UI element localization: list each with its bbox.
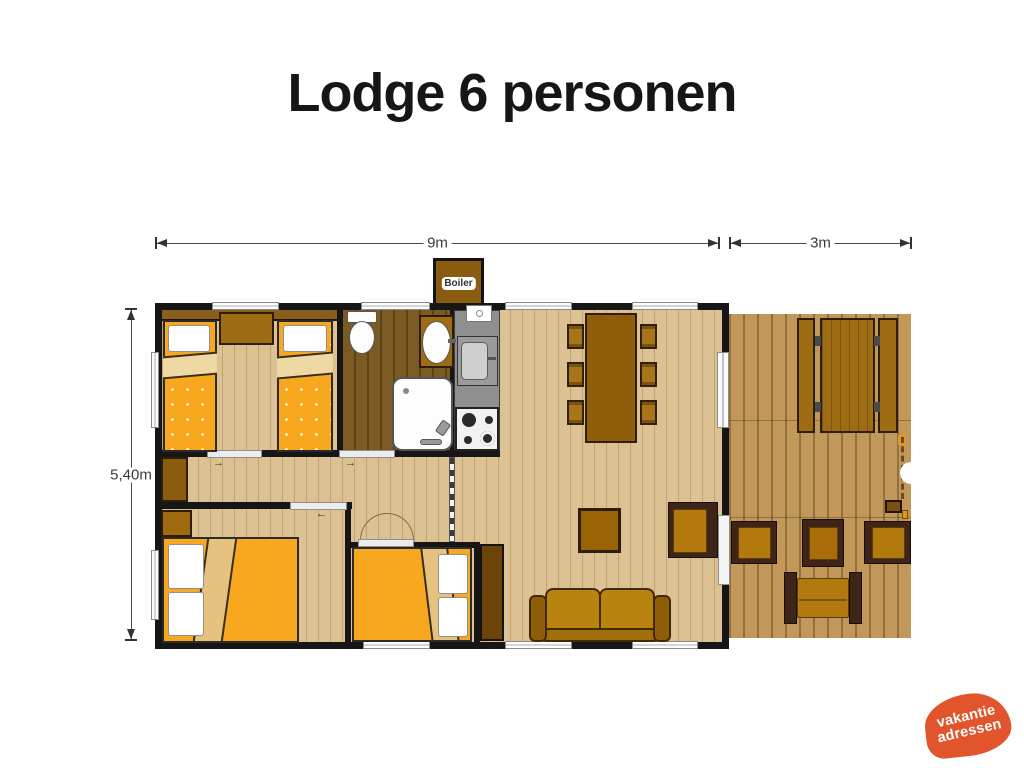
burner-large xyxy=(462,413,476,427)
shower-handset xyxy=(420,439,442,445)
arrow-up-icon xyxy=(127,310,135,320)
armchair-cushion xyxy=(872,527,905,559)
boiler-label: Boiler xyxy=(441,277,475,290)
dimension-end-tick xyxy=(718,237,720,249)
duvet-fold xyxy=(277,352,333,380)
kitchen-sink-unit xyxy=(457,336,498,386)
loveseat-armrest xyxy=(784,572,797,624)
dimension-label-9m: 9m xyxy=(423,236,452,251)
living-wardrobe xyxy=(480,544,504,641)
window-south-bedroom-middle xyxy=(363,641,430,649)
deck-plank-seam xyxy=(729,517,911,518)
deck-planter-box xyxy=(885,500,902,513)
deck-marker xyxy=(902,510,908,519)
heater-dial xyxy=(476,310,483,317)
dining-chair xyxy=(567,324,584,349)
window-north-living xyxy=(632,302,698,310)
arrow-right-icon xyxy=(708,239,718,247)
sofa xyxy=(529,588,671,642)
picnic-table xyxy=(820,318,875,433)
pillow xyxy=(168,325,210,352)
door-slide-arrow-icon: → xyxy=(345,458,356,469)
arrow-left-icon xyxy=(731,239,741,247)
arrow-down-icon xyxy=(127,629,135,639)
deck-side-table-top xyxy=(809,527,838,560)
deck-side-table xyxy=(802,519,844,567)
partition-dashed xyxy=(449,457,455,542)
deck-armchair-left xyxy=(731,521,777,564)
vakantieadressen-logo: vakantie adressen xyxy=(922,690,1014,761)
shower-head xyxy=(435,419,451,436)
picnic-table-bracket xyxy=(874,402,880,412)
sofa-armrest xyxy=(653,595,671,642)
hall-wardrobe xyxy=(161,457,188,502)
picnic-table-bracket xyxy=(815,336,821,346)
duvet-fold xyxy=(163,352,217,380)
window-south-living-2 xyxy=(632,641,698,649)
single-bed-2 xyxy=(277,320,333,452)
picnic-table-bracket xyxy=(815,402,821,412)
deck-step-marker xyxy=(898,435,906,445)
loveseat-armrest xyxy=(849,572,862,624)
sofa-seat-cushion xyxy=(599,588,655,630)
window-north-dining xyxy=(505,302,572,310)
window-south-living-1 xyxy=(505,641,572,649)
pillow xyxy=(438,554,468,594)
deck xyxy=(729,314,911,638)
dining-chair xyxy=(640,362,657,387)
window-north-bathroom xyxy=(361,302,430,310)
loveseat-cushion-seam xyxy=(799,599,847,601)
stove xyxy=(455,407,499,451)
door-sill-bedroom-middle xyxy=(358,539,414,547)
burner-large-ring xyxy=(480,431,495,446)
armchair-cushion xyxy=(673,509,707,553)
double-bed-left xyxy=(162,537,299,643)
burner-small xyxy=(485,416,493,424)
picnic-bench-left xyxy=(797,318,815,433)
shower-drain xyxy=(403,388,409,394)
deck-door xyxy=(718,515,730,585)
pillow xyxy=(438,597,468,637)
toilet-bowl xyxy=(349,321,375,354)
loveseat-cushion xyxy=(797,578,849,618)
dining-chair xyxy=(640,400,657,425)
burner-small xyxy=(464,436,472,444)
door-slide-arrow-icon: → xyxy=(213,458,224,469)
kitchen-water-heater xyxy=(466,305,492,322)
dimension-line-9m: 9m xyxy=(155,236,720,250)
window-west-bedroom-left xyxy=(151,550,159,620)
single-bed-1 xyxy=(163,320,217,452)
nightstand xyxy=(219,312,274,345)
bedroom-left-cabinet xyxy=(161,510,192,537)
door-slide-arrow-icon: ← xyxy=(316,509,327,520)
shower-tray xyxy=(392,377,453,451)
dining-table xyxy=(585,313,637,443)
window-north-bedroom xyxy=(212,302,279,310)
logo-text: vakantie adressen xyxy=(923,700,1014,749)
dimension-line-3m: 3m xyxy=(729,236,912,250)
dining-chair xyxy=(640,324,657,349)
dining-chair xyxy=(567,362,584,387)
floorplan-page: Lodge 6 personen 9m 3m 5,40m Boiler xyxy=(0,0,1024,768)
sink-basin xyxy=(461,342,488,380)
washbasin xyxy=(422,321,451,364)
dimension-label-540m: 5,40m xyxy=(106,467,156,482)
wall-bedroom-left-east xyxy=(345,509,351,642)
pillow xyxy=(168,592,204,636)
dimension-end-tick xyxy=(910,237,912,249)
deck-edge-notch xyxy=(900,462,922,484)
window-east-living xyxy=(717,352,729,428)
dimension-end-tick xyxy=(125,639,137,641)
double-bed-middle xyxy=(352,547,472,642)
sofa-seat-cushion xyxy=(545,588,601,630)
dimension-label-3m: 3m xyxy=(806,236,835,251)
pillow xyxy=(168,544,204,589)
picnic-table-bracket xyxy=(874,336,880,346)
pillow xyxy=(283,325,327,352)
sink-faucet xyxy=(487,357,496,360)
arrow-left-icon xyxy=(157,239,167,247)
coffee-table xyxy=(578,508,621,553)
dining-chair xyxy=(567,400,584,425)
deck-armchair-right xyxy=(864,521,911,564)
dimension-line-540m: 5,40m xyxy=(124,308,138,641)
living-armchair xyxy=(668,502,718,558)
window-west-bedroom-twin xyxy=(151,352,159,428)
deck-loveseat xyxy=(784,572,862,624)
picnic-bench-right xyxy=(878,318,898,433)
page-title: Lodge 6 personen xyxy=(0,62,1024,124)
armchair-cushion xyxy=(738,527,771,559)
arrow-right-icon xyxy=(900,239,910,247)
basin-faucet xyxy=(448,339,456,343)
wall-bedroom-bathroom xyxy=(337,310,343,452)
